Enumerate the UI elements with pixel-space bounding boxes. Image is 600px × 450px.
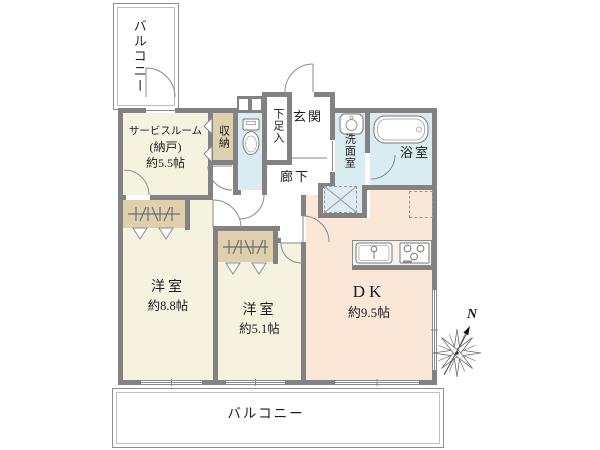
kitchen-sink-icon <box>356 243 392 263</box>
balcony-top-label: バルコニー <box>131 10 147 102</box>
compass-north-label: N <box>463 307 481 323</box>
service-room-name: サービスルーム <box>129 125 202 139</box>
balcony-bottom-label: バルコニー <box>226 404 306 424</box>
entrance-label: 玄関 <box>289 109 327 125</box>
washing-machine-pan-cross <box>324 186 357 213</box>
bathtub-icon <box>374 116 428 143</box>
service-room-label: サービスルーム (納戸) 約5.5帖 <box>123 121 208 175</box>
door-arc <box>303 216 329 242</box>
door-arc <box>146 68 175 97</box>
bedroom1-name: 洋室 <box>151 279 185 298</box>
bedroom2-label: 洋室 約5.1帖 <box>218 299 301 341</box>
service-room-subname: (納戸) <box>150 139 182 155</box>
floor-plan: バルコニー サービスルーム (納戸) 約5.5帖 収納 下足入 玄関 廊下 洗面… <box>0 0 600 450</box>
dk-size: 約9.5帖 <box>348 304 390 322</box>
bathroom-label: 浴室 <box>395 145 435 161</box>
storage-label: 収納 <box>216 116 230 158</box>
dk-name: DK <box>353 281 386 304</box>
door-arc <box>240 195 264 219</box>
door-arc <box>371 155 395 179</box>
door-arc <box>208 166 232 190</box>
bedroom1-size: 約8.8帖 <box>148 298 189 315</box>
closet-hanger-icon <box>223 240 268 254</box>
service-room-size: 約5.5帖 <box>146 155 185 171</box>
dk-label: DK 約9.5帖 <box>306 279 432 323</box>
bedroom1-label: 洋室 約8.8帖 <box>123 276 213 318</box>
toilet-icon <box>243 119 259 155</box>
closet-hanger-icon <box>128 207 180 221</box>
door-arc <box>281 243 301 263</box>
plan-graphics <box>0 0 600 450</box>
stove-icon <box>400 243 429 263</box>
door-arc <box>213 200 241 228</box>
hallway-label: 廊下 <box>273 168 317 185</box>
door-arc <box>285 64 313 92</box>
bedroom2-name: 洋室 <box>243 302 277 321</box>
washroom-label: 洗面室 <box>342 125 356 177</box>
compass-north-icon <box>426 322 488 384</box>
shoe-cabinet-label: 下足入 <box>271 100 284 152</box>
bedroom2-size: 約5.1帖 <box>239 321 280 338</box>
